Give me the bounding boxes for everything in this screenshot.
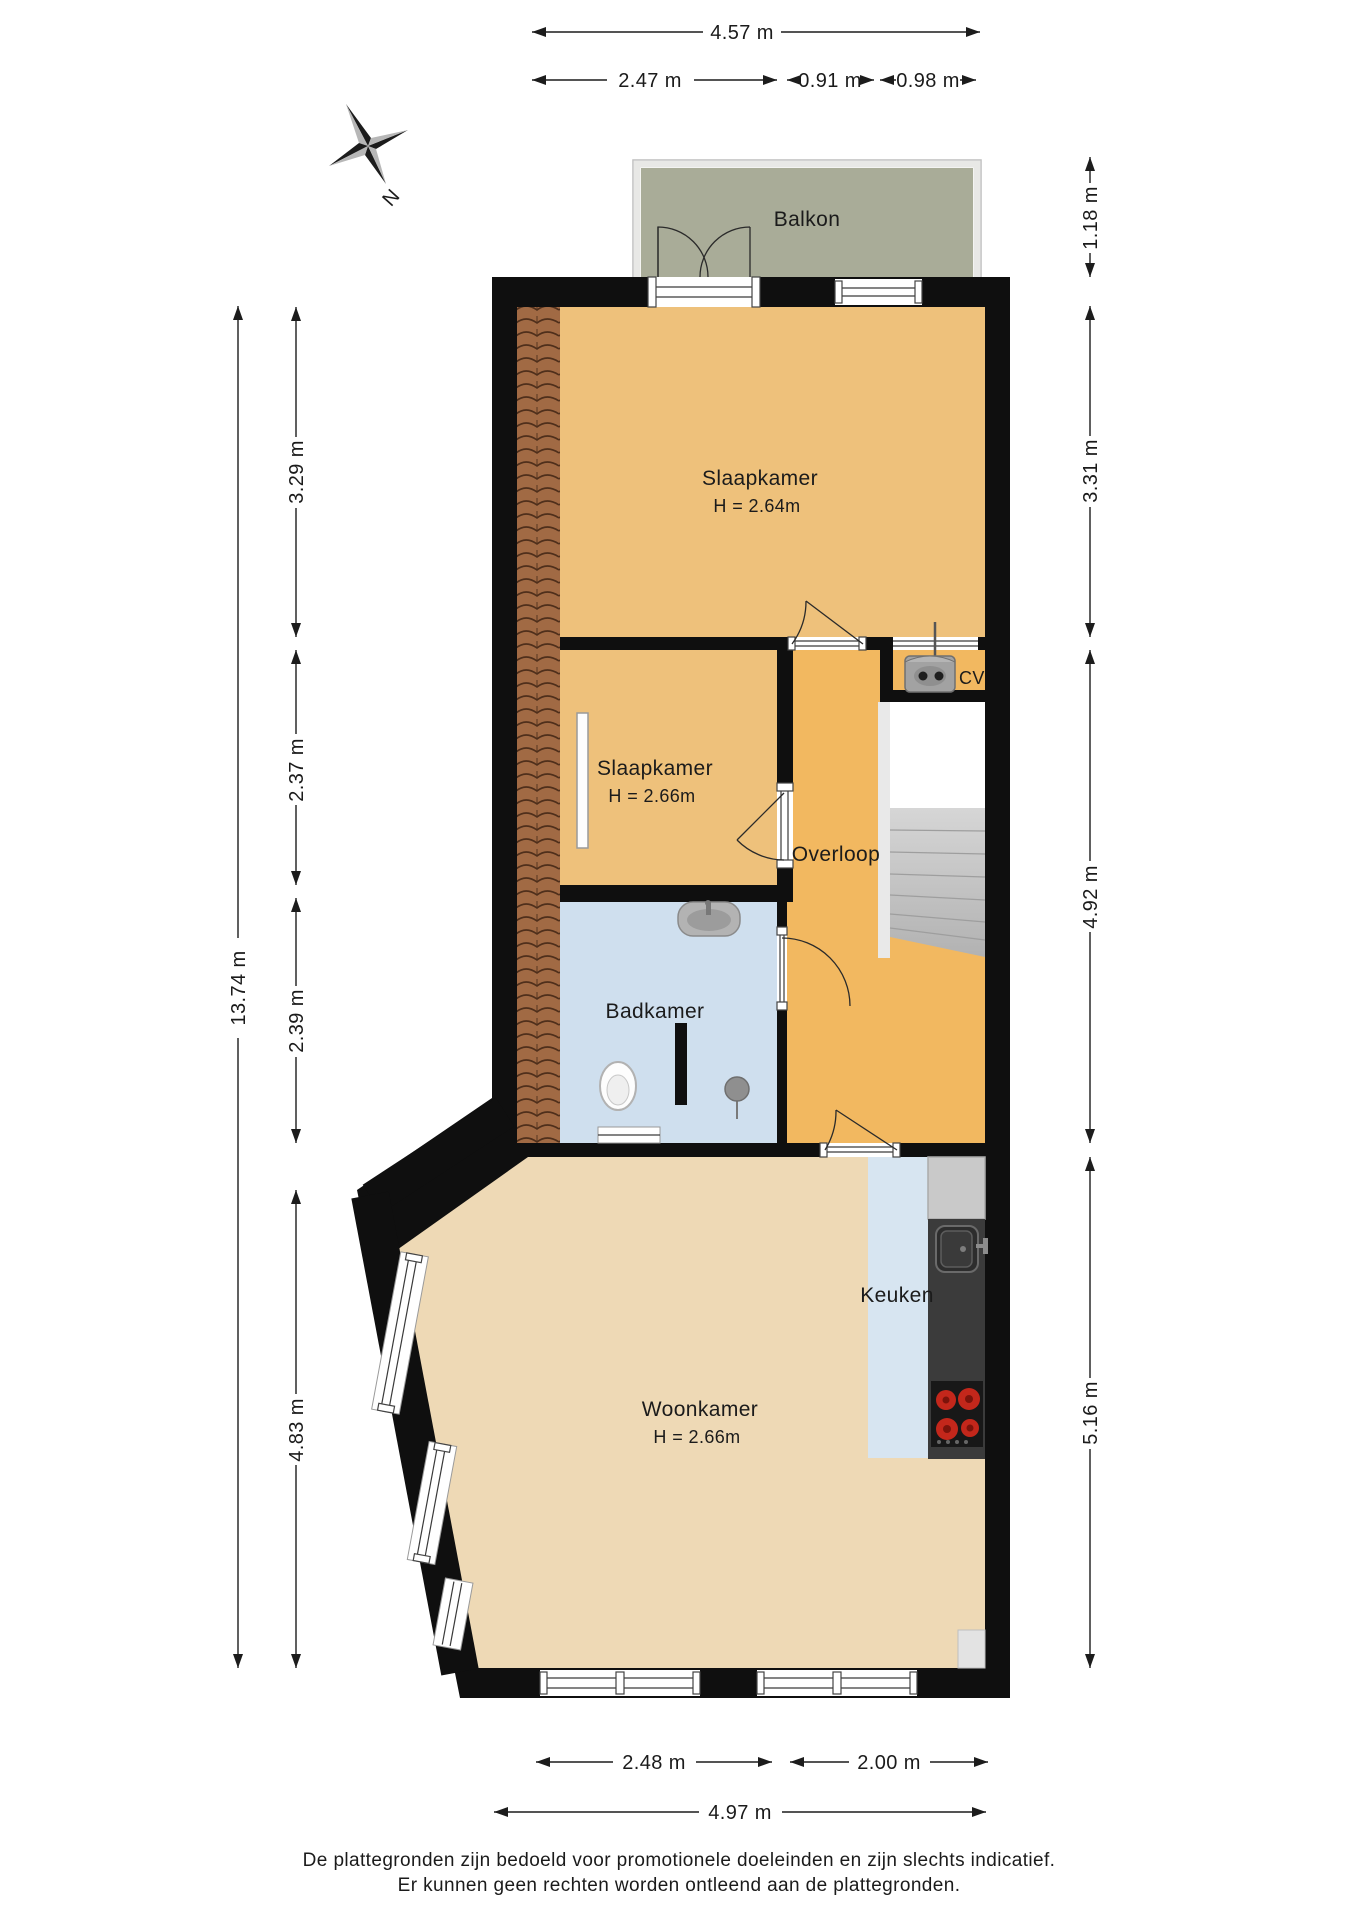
floor-plan: N Balkon: [0, 0, 1358, 1920]
compass-north-label: N: [378, 185, 404, 211]
dim-top-total: 4.57 m: [710, 22, 774, 44]
window-badkamer: [598, 1127, 660, 1143]
dim-right-4: 5.16 m: [1080, 1381, 1102, 1445]
room-balkon: Balkon: [633, 160, 981, 277]
floor-keuken: [868, 1157, 928, 1458]
sink-icon: [678, 900, 740, 936]
woonkamer-height: H = 2.66m: [653, 1427, 740, 1447]
corner-unit: [958, 1630, 985, 1668]
window-slaapkamer-klein-dormer: [577, 713, 588, 848]
dim-left-3: 2.39 m: [286, 989, 308, 1053]
dim-left-1: 3.29 m: [286, 440, 308, 504]
dim-right-2: 3.31 m: [1080, 439, 1102, 503]
dim-bottom-1: 2.48 m: [622, 1752, 686, 1774]
footer-disclaimer: De plattegronden zijn bedoeld voor promo…: [303, 1850, 1056, 1896]
toilet-icon: [600, 1062, 636, 1110]
footer-line-1: De plattegronden zijn bedoeld voor promo…: [303, 1850, 1056, 1871]
dim-top-1: 2.47 m: [618, 70, 682, 92]
dim-bottom-2: 2.00 m: [857, 1752, 921, 1774]
floor-plan-page: N Balkon: [0, 0, 1358, 1920]
window-slaapkamer-top: [835, 279, 922, 305]
window-woonkamer-bottom-1: [540, 1670, 700, 1696]
dim-right-3: 4.92 m: [1080, 865, 1102, 929]
slaapkamer-boven-height: H = 2.64m: [713, 496, 800, 516]
slaapkamer-boven-label: Slaapkamer: [702, 467, 818, 490]
dim-top-2: 0.91 m: [798, 70, 862, 92]
dim-top-3: 0.98 m: [896, 70, 960, 92]
kitchen-counter: [928, 1157, 988, 1459]
roof-tile-strip: [517, 307, 560, 1143]
stairs: [878, 702, 985, 958]
dim-bottom-total: 4.97 m: [708, 1802, 772, 1824]
dim-left-total: 13.74 m: [228, 950, 250, 1025]
dim-left-4: 4.83 m: [286, 1398, 308, 1462]
footer-line-2: Er kunnen geen rechten worden ontleend a…: [398, 1875, 961, 1896]
overloop-label: Overloop: [792, 843, 880, 866]
compass-icon: N: [329, 104, 408, 211]
dim-right-1: 1.18 m: [1080, 186, 1102, 250]
dim-left-2: 2.37 m: [286, 738, 308, 802]
slaapkamer-klein-height: H = 2.66m: [608, 786, 695, 806]
badkamer-label: Badkamer: [606, 1000, 705, 1023]
window-woonkamer-bottom-2: [757, 1670, 917, 1696]
slaapkamer-klein-label: Slaapkamer: [597, 757, 713, 780]
keuken-label: Keuken: [860, 1284, 934, 1307]
balkon-label: Balkon: [774, 208, 841, 231]
woonkamer-label: Woonkamer: [642, 1398, 758, 1421]
stove-icon: [931, 1381, 983, 1447]
cv-label: CV: [959, 668, 985, 688]
